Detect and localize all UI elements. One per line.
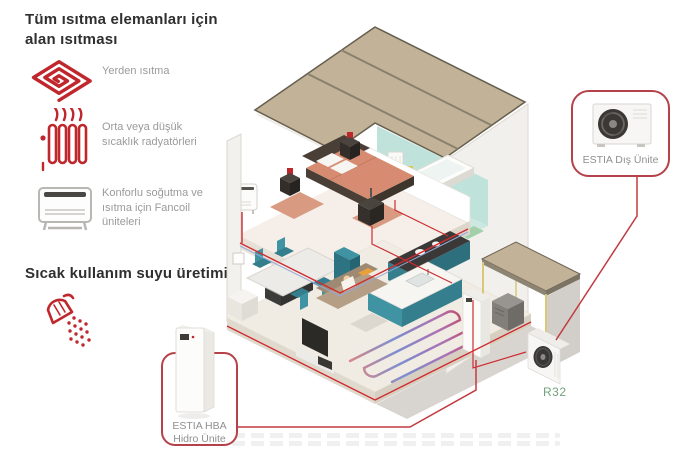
refrigerant-label: R32 — [543, 385, 567, 399]
hydro-unit-annex — [463, 288, 490, 358]
watermark-strip — [232, 433, 560, 447]
buffer-unit — [492, 293, 524, 331]
house-cutaway-illustration — [0, 0, 685, 450]
estia-infographic: Tüm ısıtma elemanları için alan ısıtması… — [0, 0, 685, 450]
nightstand — [280, 168, 300, 196]
outdoor-unit-label: ESTIA Dış Ünite — [573, 154, 668, 167]
thermostat — [233, 253, 244, 264]
hydro-unit-label-line2: Hidro Ünite — [163, 433, 236, 446]
outdoor-unit-image — [591, 102, 653, 148]
hydro-unit-image — [172, 320, 222, 422]
outdoor-unit-callout: ESTIA Dış Ünite — [571, 90, 670, 177]
